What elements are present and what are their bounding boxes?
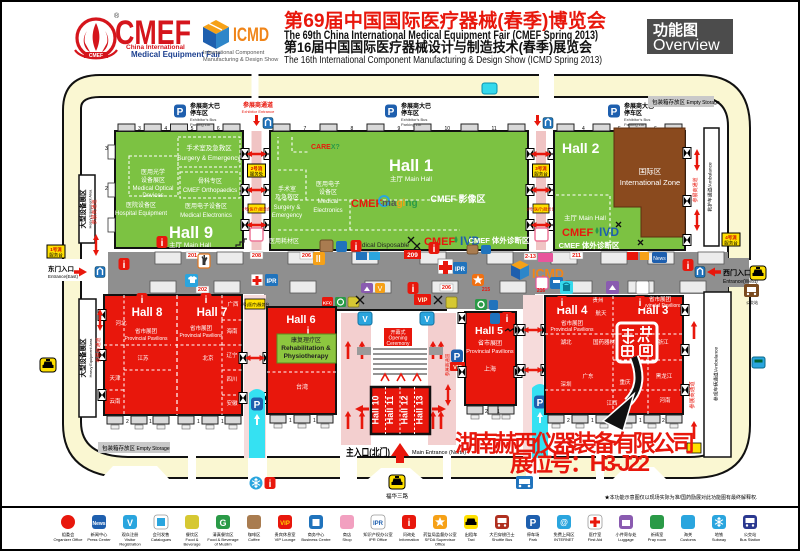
- svg-text:主厅 Main Hall: 主厅 Main Hall: [564, 213, 606, 222]
- svg-text:Heavy Equipment Area: Heavy Equipment Area: [89, 338, 93, 378]
- svg-text:Hall 1: Hall 1: [389, 157, 433, 175]
- svg-text:2: 2: [662, 418, 665, 424]
- svg-text:G: G: [219, 518, 226, 528]
- svg-text:Hall 7: Hall 7: [197, 307, 228, 319]
- svg-text:省市展团: 省市展团: [649, 295, 672, 303]
- svg-text:Provincial Pavilions: Provincial Pavilions: [179, 333, 223, 339]
- svg-text:The 16th International Compone: The 16th International Component Manufac…: [284, 54, 602, 66]
- svg-text:医用光学: 医用光学: [141, 168, 165, 176]
- svg-text:202: 202: [198, 287, 207, 293]
- svg-text:2: 2: [105, 186, 108, 192]
- svg-text:救护车通道/Ambulance: 救护车通道/Ambulance: [707, 162, 714, 212]
- svg-text:省市展团: 省市展团: [135, 327, 158, 335]
- svg-text:Emergency: Emergency: [272, 213, 302, 219]
- svg-text:of Muslim: of Muslim: [214, 542, 232, 547]
- svg-text:1: 1: [497, 409, 500, 415]
- svg-text:Parking Lot: Parking Lot: [624, 122, 645, 127]
- svg-text:211: 211: [572, 253, 581, 259]
- svg-text:Shuttle Bus: Shuttle Bus: [492, 537, 512, 542]
- svg-text:浙江: 浙江: [657, 338, 669, 346]
- svg-text:1: 1: [197, 419, 200, 425]
- svg-text:VIP Lounge: VIP Lounge: [275, 537, 297, 542]
- svg-text:台湾: 台湾: [296, 383, 308, 391]
- svg-text:Shop: Shop: [342, 537, 352, 542]
- svg-text:Electronics: Electronics: [313, 208, 342, 214]
- svg-text:CMEF 体外诊断区: CMEF 体外诊断区: [559, 240, 620, 250]
- svg-text:包装箱存放区 Empty Storage: 包装箱存放区 Empty Storage: [652, 98, 720, 106]
- svg-text:Hall 8: Hall 8: [132, 307, 163, 319]
- svg-text:3: 3: [105, 146, 108, 152]
- svg-text:4: 4: [164, 126, 167, 132]
- svg-text:2: 2: [567, 418, 570, 424]
- svg-text:参展商通道: 参展商通道: [692, 177, 699, 202]
- svg-text:1: 1: [149, 419, 152, 425]
- svg-text:Beverage: Beverage: [183, 542, 201, 547]
- svg-text:江苏: 江苏: [137, 354, 149, 362]
- svg-text:Parking Lot: Parking Lot: [190, 122, 211, 127]
- svg-text:209: 209: [407, 252, 418, 259]
- svg-text:第16届中国国际医疗器械设计与制造技术(春季)展览会: 第16届中国国际医疗器械设计与制造技术(春季)展览会: [284, 39, 593, 55]
- svg-text:IPR: IPR: [266, 279, 277, 285]
- svg-text:Hall 12: Hall 12: [400, 395, 410, 424]
- svg-text:Devices: Devices: [142, 193, 163, 199]
- svg-text:3号(医疗)服务台: 3号(医疗)服务台: [527, 206, 556, 212]
- svg-text:Ceremony: Ceremony: [386, 341, 410, 347]
- svg-text:VIP: VIP: [280, 521, 290, 527]
- svg-text:辽宁: 辽宁: [226, 351, 238, 359]
- svg-text:IPR: IPR: [373, 521, 384, 527]
- svg-text:公交站: 公交站: [746, 299, 758, 305]
- svg-text:广东: 广东: [582, 372, 594, 380]
- svg-text:主厅 Main Hall: 主厅 Main Hall: [390, 174, 432, 183]
- svg-text:International Component: International Component: [203, 50, 265, 56]
- svg-text:VIP: VIP: [418, 298, 428, 304]
- svg-text:主入口(北门): 主入口(北门): [346, 446, 390, 459]
- svg-text:Luggage: Luggage: [618, 537, 634, 542]
- svg-text:208: 208: [252, 253, 261, 259]
- svg-text:Taxi: Taxi: [467, 537, 474, 542]
- svg-text:Hall 11: Hall 11: [385, 396, 395, 425]
- svg-text:四川: 四川: [226, 376, 237, 383]
- svg-text:云南: 云南: [109, 397, 121, 405]
- svg-text:1: 1: [313, 418, 316, 424]
- svg-text:手术室: 手术室: [278, 185, 296, 193]
- svg-text:7: 7: [304, 126, 307, 132]
- svg-text:服务台: 服务台: [724, 240, 738, 247]
- svg-text:骨科专区: 骨科专区: [198, 177, 222, 185]
- svg-text:Medical Electronics: Medical Electronics: [180, 213, 232, 219]
- svg-text:KFC: KFC: [323, 301, 333, 306]
- svg-text:CMEF: CMEF: [89, 53, 103, 59]
- svg-text:医用电子设备区: 医用电子设备区: [185, 202, 227, 210]
- svg-text:北京: 北京: [202, 354, 214, 362]
- svg-text:参展商通道: 参展商通道: [95, 337, 102, 362]
- svg-text:Organizer Office: Organizer Office: [53, 537, 83, 542]
- svg-text:216: 216: [537, 288, 546, 294]
- svg-text:医用电子: 医用电子: [316, 180, 340, 188]
- svg-text:Surgery &: Surgery &: [274, 205, 301, 211]
- svg-text:International Zone: International Zone: [620, 178, 680, 187]
- svg-text:省市展团: 省市展团: [478, 339, 502, 347]
- svg-text:包装箱存放区 Empty Storage: 包装箱存放区 Empty Storage: [102, 444, 170, 452]
- svg-text:停车区: 停车区: [401, 109, 419, 117]
- svg-text:Surgery & Emergency: Surgery & Emergency: [177, 155, 241, 162]
- svg-text:Provincial Pavilions: Provincial Pavilions: [124, 336, 168, 342]
- svg-text:Manufacturing & Design Show: Manufacturing & Design Show: [203, 57, 279, 63]
- svg-text:CMEF Orthopaedics: CMEF Orthopaedics: [183, 188, 237, 194]
- svg-text:Rehabilitation &: Rehabilitation &: [281, 345, 331, 352]
- svg-text:河南: 河南: [659, 396, 671, 404]
- svg-text:参观车辆通道/Ambulance: 参观车辆通道/Ambulance: [713, 347, 720, 401]
- svg-text:河北: 河北: [115, 319, 127, 327]
- svg-text:东门入口: 东门入口: [48, 264, 74, 273]
- svg-text:INTERNET: INTERNET: [554, 537, 575, 542]
- svg-text:Registration: Registration: [119, 542, 140, 547]
- svg-text:省市展团: 省市展团: [561, 319, 584, 327]
- svg-text:贵州: 贵州: [592, 296, 603, 304]
- svg-text:省市展团: 省市展团: [190, 324, 213, 332]
- svg-text:Provincial Pavilions: Provincial Pavilions: [550, 327, 594, 333]
- svg-text:深圳: 深圳: [560, 380, 572, 388]
- svg-text:2: 2: [485, 409, 488, 415]
- svg-text:Overview: Overview: [653, 37, 720, 54]
- svg-text:Hall 5: Hall 5: [475, 325, 503, 337]
- svg-text:设备区: 设备区: [319, 188, 337, 196]
- svg-text:News: News: [92, 521, 105, 527]
- svg-text:11: 11: [492, 126, 497, 132]
- svg-text:1: 1: [639, 418, 642, 424]
- svg-text:201: 201: [188, 253, 197, 259]
- svg-text:1: 1: [221, 419, 224, 425]
- svg-text:Press Center: Press Center: [87, 537, 111, 542]
- svg-text:4: 4: [582, 126, 585, 132]
- svg-text:Catalogues: Catalogues: [151, 537, 171, 542]
- svg-text:Park: Park: [529, 537, 537, 542]
- svg-text:maging: maging: [382, 198, 418, 209]
- svg-text:V: V: [362, 315, 368, 324]
- svg-text:湖北: 湖北: [560, 338, 572, 346]
- svg-text:参展商通道: 参展商通道: [444, 353, 451, 376]
- svg-text:参展商通道: 参展商通道: [242, 101, 273, 109]
- svg-text:8: 8: [351, 126, 354, 132]
- svg-text:参展商通道: 参展商通道: [91, 199, 98, 224]
- svg-text:展位号：H3-J22: 展位号：H3-J22: [510, 450, 650, 476]
- svg-text:Physiotherapy: Physiotherapy: [284, 353, 329, 360]
- svg-text:国际区: 国际区: [639, 167, 662, 176]
- svg-text:安徽: 安徽: [226, 399, 238, 407]
- svg-text:Information: Information: [399, 537, 419, 542]
- svg-text:Bus Station: Bus Station: [740, 537, 760, 542]
- svg-text:6: 6: [217, 126, 220, 132]
- svg-text:2-13: 2-13: [525, 254, 536, 260]
- svg-text:News: News: [653, 256, 666, 262]
- svg-text:西门入口: 西门入口: [723, 268, 751, 277]
- svg-text:CMEF 影像区: CMEF 影像区: [431, 193, 486, 204]
- svg-text:3: 3: [138, 126, 141, 132]
- svg-text:上海: 上海: [484, 365, 496, 373]
- svg-text:206: 206: [442, 285, 451, 291]
- svg-text:CAREX?: CAREX?: [311, 144, 340, 151]
- svg-text:广西: 广西: [227, 300, 239, 308]
- svg-text:参展商大巴: 参展商大巴: [400, 102, 431, 110]
- svg-text:江西: 江西: [606, 400, 618, 407]
- svg-text:大型设备展区: 大型设备展区: [78, 189, 87, 229]
- svg-text:Pray room: Pray room: [648, 537, 667, 542]
- svg-text:主厅 Main Hall: 主厅 Main Hall: [169, 240, 211, 249]
- svg-text:★本功能示意图仅以现场实际为准/国药励展对此功能图有最终解释: ★本功能示意图仅以现场实际为准/国药励展对此功能图有最终解释权.: [605, 494, 758, 501]
- svg-text:停车区: 停车区: [624, 109, 642, 117]
- svg-text:及急救区: 及急救区: [275, 193, 299, 201]
- svg-text:Parking Lot: Parking Lot: [401, 122, 422, 127]
- svg-text:206: 206: [302, 253, 311, 259]
- svg-text:服务处: 服务处: [250, 171, 264, 178]
- svg-text:CMEF 体外诊断区: CMEF 体外诊断区: [469, 235, 530, 245]
- svg-text:Business Centre: Business Centre: [301, 537, 331, 542]
- svg-text:V: V: [378, 286, 383, 293]
- svg-text:1: 1: [289, 418, 292, 424]
- svg-text:Provincial Pavilions: Provincial Pavilions: [466, 349, 514, 355]
- svg-text:@: @: [560, 518, 568, 527]
- svg-text:福华三路: 福华三路: [386, 492, 409, 500]
- svg-text:医用耗材区: 医用耗材区: [269, 237, 299, 245]
- svg-text:IPR: IPR: [455, 267, 466, 273]
- svg-text:P: P: [530, 518, 537, 529]
- svg-text:4号(医疗)服务台: 4号(医疗)服务台: [241, 301, 270, 307]
- svg-text:航天: 航天: [595, 309, 607, 317]
- svg-text:天津: 天津: [109, 375, 121, 382]
- svg-text:i: i: [408, 518, 411, 529]
- svg-text:Medical Optical: Medical Optical: [132, 186, 173, 192]
- svg-text:10: 10: [445, 126, 451, 132]
- svg-text:Subway: Subway: [712, 537, 726, 542]
- svg-text:手术室及急救区: 手术室及急救区: [186, 143, 232, 152]
- svg-text:黑龙江: 黑龙江: [656, 372, 673, 380]
- svg-text:服务台: 服务台: [534, 171, 548, 178]
- svg-text:Coffee: Coffee: [248, 537, 260, 542]
- svg-text:IPR Office: IPR Office: [369, 537, 388, 542]
- svg-text:Hall 2: Hall 2: [562, 140, 600, 156]
- svg-text:大型设备展区: 大型设备展区: [78, 338, 87, 378]
- svg-text:Entrance(East): Entrance(East): [48, 274, 79, 279]
- svg-text:CMEF: CMEF: [351, 198, 382, 210]
- svg-text:215: 215: [482, 287, 491, 293]
- svg-text:2: 2: [126, 419, 129, 425]
- svg-text:国药器材: 国药器材: [593, 338, 616, 346]
- svg-text:重庆: 重庆: [619, 378, 631, 386]
- svg-text:ICMD: ICMD: [233, 25, 269, 46]
- svg-text:V: V: [127, 518, 133, 528]
- svg-text:参展商大巴: 参展商大巴: [189, 102, 220, 110]
- svg-text:Hall 9: Hall 9: [169, 224, 213, 242]
- svg-text:Hall 13: Hall 13: [414, 395, 424, 424]
- svg-text:Exhibitor Entrance: Exhibitor Entrance: [242, 109, 275, 114]
- svg-text:Hospital Equipment: Hospital Equipment: [115, 211, 167, 217]
- svg-text:Customs: Customs: [680, 537, 696, 542]
- svg-text:参展商通道: 参展商通道: [688, 381, 696, 409]
- svg-text:康复理疗区: 康复理疗区: [291, 336, 321, 344]
- svg-text:医院设备区: 医院设备区: [126, 201, 156, 209]
- svg-text:Medical: Medical: [318, 199, 339, 205]
- svg-text:设备展区: 设备展区: [141, 176, 165, 184]
- svg-text:1号(医疗)服务台: 1号(医疗)服务台: [242, 206, 271, 212]
- svg-text:Office: Office: [435, 542, 446, 547]
- svg-text:CMEF: CMEF: [562, 227, 593, 239]
- svg-text:服务台: 服务台: [49, 252, 63, 259]
- svg-text:停车区: 停车区: [190, 109, 208, 117]
- svg-text:海南: 海南: [226, 327, 238, 335]
- svg-text:V: V: [424, 315, 430, 324]
- svg-text:First Aid: First Aid: [588, 537, 602, 542]
- svg-text:Hall 10: Hall 10: [371, 395, 381, 424]
- svg-text:1: 1: [591, 418, 594, 424]
